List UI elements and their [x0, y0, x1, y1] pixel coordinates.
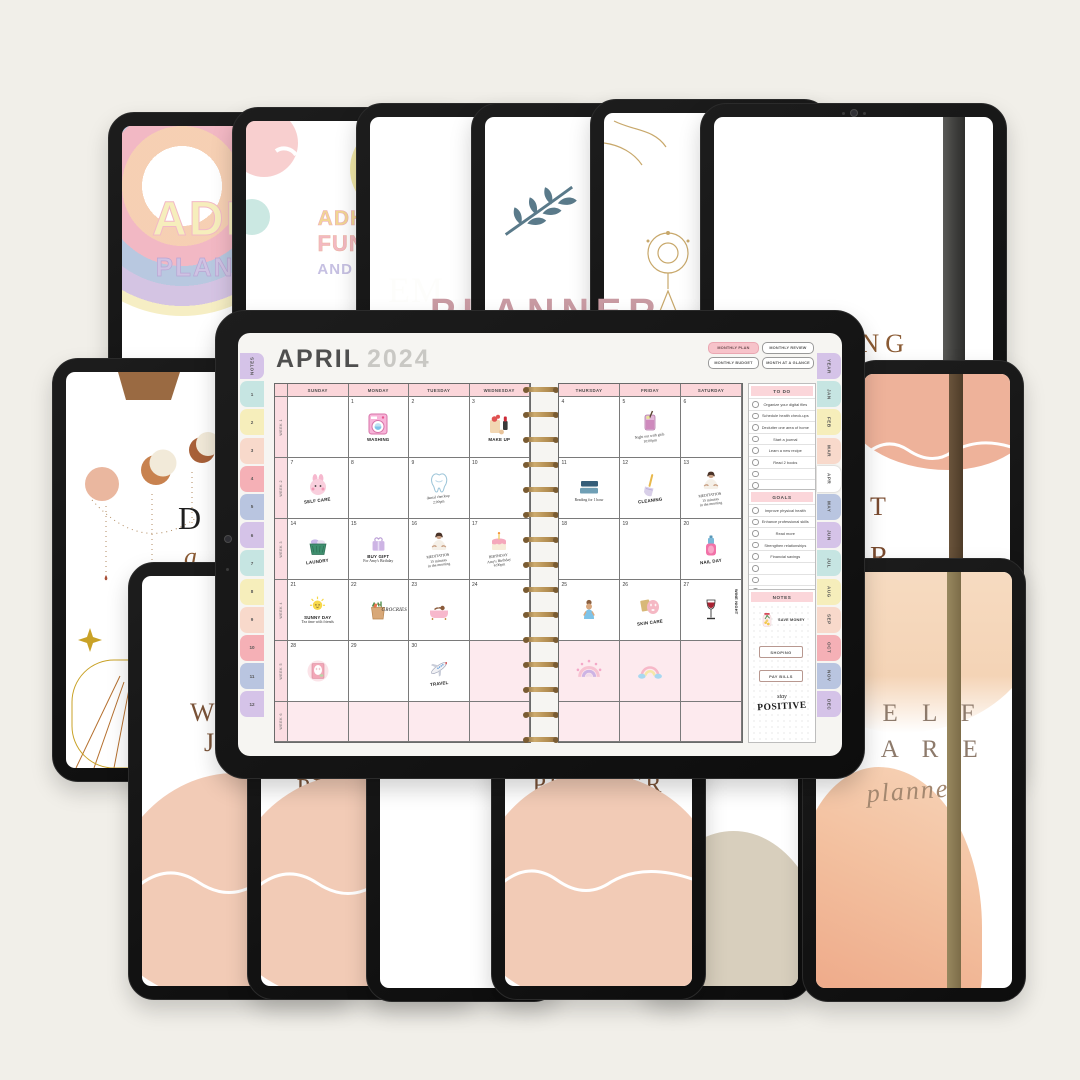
coil-ring-icon: [525, 387, 557, 392]
day-cell-empty[interactable]: [470, 702, 531, 742]
event-label: SELF CARE: [304, 496, 331, 504]
day-cell-empty[interactable]: [620, 702, 681, 742]
day-cell-23[interactable]: 23: [409, 580, 470, 641]
tab-feb[interactable]: FEB: [817, 409, 841, 435]
week-label-2: WEEK 2: [275, 458, 288, 519]
camera-dots-icon: [842, 109, 866, 117]
tab-3[interactable]: 3: [240, 438, 264, 464]
meditation-sticker: [427, 530, 451, 554]
day-cell-28[interactable]: 28: [288, 641, 349, 702]
day-cell-9[interactable]: 9dental checkup2:00pm: [409, 458, 470, 519]
checkbox-circle-icon[interactable]: [752, 413, 759, 420]
event-note: Night out with girls10:00pm: [635, 432, 666, 445]
event-label: GROCRIES: [382, 608, 407, 613]
checklist-item-empty[interactable]: [749, 562, 815, 574]
event-label: NAIL DAY: [700, 557, 722, 565]
day-cell-13[interactable]: 13MEDITATION15 minutesin the morning: [681, 458, 742, 519]
checklist-label: Read more: [759, 531, 812, 536]
day-cell-29[interactable]: 29: [349, 641, 410, 702]
calendar-right-page: THURSDAYFRIDAYSATURDAY45Night out with g…: [558, 383, 743, 743]
week-label-6: WEEK 6: [275, 702, 288, 742]
cover-letter-fragment: J: [204, 728, 214, 758]
cover-letter-fragment: T: [870, 492, 886, 522]
day-cell-18[interactable]: 18: [559, 519, 620, 580]
tab-may[interactable]: MAY: [817, 494, 841, 520]
tab-12[interactable]: 12: [240, 691, 264, 717]
day-cell-empty[interactable]: [349, 702, 410, 742]
checkbox-circle-icon[interactable]: [752, 530, 759, 537]
view-button-monthly-budget[interactable]: MONTHLY BUDGET: [708, 357, 759, 369]
coil-ring-icon: [525, 537, 557, 542]
tab-1[interactable]: 1: [240, 381, 264, 407]
panel-title: NOTES: [751, 592, 813, 602]
tab-jan[interactable]: JAN: [817, 381, 841, 407]
tab-apr[interactable]: APR: [817, 466, 841, 492]
day-number: 4: [562, 399, 565, 405]
rainbow-hearts-sticker: [575, 657, 603, 685]
day-cell-27[interactable]: 27WINE NIGHT: [681, 580, 742, 641]
cake-sticker: [487, 530, 511, 554]
tab-10[interactable]: 10: [240, 635, 264, 661]
camera-icon: [224, 535, 232, 543]
tab-sep[interactable]: SEP: [817, 607, 841, 633]
day-cell-empty[interactable]: [409, 702, 470, 742]
checklist-item[interactable]: Read 2 books: [749, 456, 815, 468]
tablet-monthly-planner-main: APRIL2024 MONTHLY PLANMONTHLY REVIEWMONT…: [215, 310, 865, 779]
left-tab-column: NOTES123456789101112: [240, 353, 264, 717]
day-number: 15: [351, 521, 357, 527]
checklist-item[interactable]: Start a journal: [749, 433, 815, 445]
day-header-saturday: SATURDAY: [681, 384, 742, 397]
event-label: WASHING: [367, 437, 389, 442]
checklist-item[interactable]: Schedule health check-ups: [749, 410, 815, 422]
elastic-strap: [947, 572, 961, 988]
makeup-sticker: [487, 412, 511, 436]
day-cell-2[interactable]: 2: [409, 397, 470, 458]
day-number: 3: [472, 399, 475, 405]
script-stay: stay: [749, 694, 815, 700]
tab-jul[interactable]: JUL: [817, 550, 841, 576]
event-note: MEDITATION15 minutesin the morning: [426, 553, 451, 570]
tab-year[interactable]: YEAR: [817, 353, 841, 379]
year-title: 2024: [367, 345, 431, 373]
ribbon-shopping[interactable]: SHOPING: [759, 646, 803, 658]
day-number: 30: [412, 643, 418, 649]
day-number: 1: [351, 399, 354, 405]
day-cell-empty[interactable]: [681, 702, 742, 742]
white-wave-line-icon: [505, 862, 692, 932]
goals-panel: GOALSImprove physical healthEnhance prof…: [748, 489, 816, 598]
day-cell-1[interactable]: 1WASHING: [349, 397, 410, 458]
view-button-monthly-review[interactable]: MONTHLY REVIEW: [762, 342, 814, 354]
face-mask-sticker: [306, 659, 330, 683]
day-header-thursday: THURSDAY: [559, 384, 620, 397]
day-number: 21: [291, 582, 297, 588]
day-cell-6[interactable]: 6: [681, 397, 742, 458]
event-note: Reading for 1 hour: [575, 498, 604, 503]
checkbox-circle-icon[interactable]: [752, 507, 759, 514]
day-number: 24: [472, 582, 478, 588]
day-cell-3[interactable]: 3MAKE UP: [470, 397, 531, 458]
planner-app-screen: APRIL2024 MONTHLY PLANMONTHLY REVIEWMONT…: [238, 333, 842, 756]
week-label-1: WEEK 1: [275, 397, 288, 458]
day-cell-22[interactable]: 22GROCRIES: [349, 580, 410, 641]
day-header-wednesday: WEDNESDAY: [470, 384, 531, 397]
bunny-sticker: [306, 473, 330, 497]
day-number: 25: [562, 582, 568, 588]
event-note: Tea time with friends: [302, 620, 334, 625]
tab-9[interactable]: 9: [240, 607, 264, 633]
month-title: APRIL: [276, 345, 361, 373]
books-sticker: [577, 474, 601, 498]
day-number: 2: [412, 399, 415, 405]
day-cell-25[interactable]: 25: [559, 580, 620, 641]
week-label-5: WEEK 5: [275, 641, 288, 702]
event-label: LAUNDRY: [306, 557, 329, 565]
broom-sticker: [638, 473, 662, 497]
washing-machine-sticker: [366, 412, 390, 436]
savings-jar-sticker: [759, 612, 775, 628]
day-cell-24[interactable]: 24: [470, 580, 531, 641]
day-cell-empty[interactable]: [559, 702, 620, 742]
day-number: 12: [623, 460, 629, 466]
coil-ring-icon: [525, 662, 557, 667]
checklist-label: Financial savings: [759, 554, 812, 559]
planner-mockup-scene: ADHD PLANNER ADHD FUNC AND CO EM: [0, 0, 1080, 1080]
day-cell-15[interactable]: 15BUY GIFTFor Amy's Birthday: [349, 519, 410, 580]
day-number: 11: [562, 460, 567, 466]
day-cell-empty[interactable]: [288, 702, 349, 742]
day-cell-12[interactable]: 12CLEANING: [620, 458, 681, 519]
day-number: 14: [291, 521, 297, 527]
tab-7[interactable]: 7: [240, 550, 264, 576]
day-cell-empty[interactable]: [470, 641, 531, 702]
day-cell-26[interactable]: 26SKIN CARE: [620, 580, 681, 641]
checklist-item[interactable]: Financial savings: [749, 550, 815, 562]
tab-mar[interactable]: MAR: [817, 438, 841, 464]
day-number: 10: [472, 460, 478, 466]
rainbow-clouds-sticker: [636, 657, 664, 685]
day-number: 7: [291, 460, 294, 466]
event-label: CLEANING: [638, 496, 663, 504]
day-cell-empty[interactable]: [620, 641, 681, 702]
view-buttons: MONTHLY PLANMONTHLY REVIEWMONTHLY BUDGET…: [708, 342, 814, 369]
event-note: For Amy's Birthday: [363, 559, 393, 564]
coil-ring-icon: [525, 712, 557, 717]
tab-dec[interactable]: DEC: [817, 691, 841, 717]
day-number: 26: [623, 582, 629, 588]
header-corner: [275, 384, 288, 397]
checkbox-circle-icon[interactable]: [752, 577, 759, 584]
checkbox-circle-icon[interactable]: [752, 459, 759, 466]
cocktail-sticker: [638, 410, 662, 434]
tab-4[interactable]: 4: [240, 466, 264, 492]
checkbox-circle-icon[interactable]: [752, 436, 759, 443]
day-number: 19: [623, 521, 629, 527]
checkbox-circle-icon[interactable]: [752, 553, 759, 560]
camera-dot-icon: [226, 568, 229, 571]
day-header-friday: FRIDAY: [620, 384, 681, 397]
coil-ring-icon: [525, 737, 557, 742]
checklist-label: Improve physical health: [759, 508, 812, 513]
tab-notes[interactable]: NOTES: [240, 353, 264, 379]
spiral-binding: [525, 387, 557, 756]
day-header-tuesday: TUESDAY: [409, 384, 470, 397]
page-title: APRIL2024: [276, 345, 431, 374]
gift-sticker: [369, 534, 388, 553]
checklist-label: Learn a new recipe: [759, 448, 812, 453]
day-number: 20: [684, 521, 690, 527]
todo-panel: TO DOOrganize your digital filesSchedule…: [748, 383, 816, 492]
partially-hidden-cover-title: PLANNER: [430, 293, 704, 311]
coil-ring-icon: [525, 437, 557, 442]
checklist-label: Organize your digital files: [759, 402, 812, 407]
sticker-label: SAVE MONEY: [778, 618, 805, 622]
tab-8[interactable]: 8: [240, 579, 264, 605]
view-button-monthly-plan[interactable]: MONTHLY PLAN: [708, 342, 759, 354]
panel-title: GOALS: [751, 492, 813, 502]
checklist-label: Strengthen relationships: [759, 543, 812, 548]
day-cell-empty[interactable]: [559, 641, 620, 702]
event-label: TRAVEL: [429, 680, 448, 687]
day-number: 28: [291, 643, 297, 649]
airplane-sticker: [427, 656, 451, 680]
day-cell-19[interactable]: 19: [620, 519, 681, 580]
day-number: 18: [562, 521, 568, 527]
event-note: dental checkup2:00pm: [427, 494, 451, 506]
event-label: SKIN CARE: [637, 618, 663, 626]
cover-letter-fragment: D: [178, 500, 201, 537]
coil-ring-icon: [525, 612, 557, 617]
day-cell-empty[interactable]: [288, 397, 349, 458]
checklist-item[interactable]: Enhance professional skills: [749, 516, 815, 528]
day-cell-7[interactable]: 7SELF CARE: [288, 458, 349, 519]
checklist-item[interactable]: Read more: [749, 527, 815, 539]
leaf-sprig-icon: [492, 160, 583, 258]
tab-2[interactable]: 2: [240, 409, 264, 435]
tooth-sticker: [427, 471, 451, 495]
skincare-sticker: [638, 595, 662, 619]
checklist-item[interactable]: Declutter one area of home: [749, 421, 815, 433]
checkbox-circle-icon[interactable]: [752, 424, 759, 431]
checklist-item[interactable]: Strengthen relationships: [749, 539, 815, 551]
day-cell-8[interactable]: 8: [349, 458, 410, 519]
laundry-basket-sticker: [306, 534, 330, 558]
checkbox-circle-icon[interactable]: [752, 542, 759, 549]
day-cell-21[interactable]: 21SUNNY DAYTea time with friends: [288, 580, 349, 641]
checklist-item[interactable]: Learn a new recipe: [749, 444, 815, 456]
checklist-label: Enhance professional skills: [759, 519, 812, 524]
day-number: 13: [684, 460, 690, 466]
wine-sticker: [699, 598, 723, 622]
event-label: WINE NIGHT: [734, 589, 739, 614]
week-label-4: WEEK 4: [275, 580, 288, 641]
right-tab-column: YEARJANFEBMARAPRMAYJUNJULAUGSEPOCTNOVDEC: [817, 353, 841, 717]
day-cell-11[interactable]: 11Reading for 1 hour: [559, 458, 620, 519]
day-cell-10[interactable]: 10: [470, 458, 531, 519]
checklist-label: Read 2 books: [759, 460, 812, 465]
day-number: 9: [412, 460, 415, 466]
checkbox-circle-icon[interactable]: [752, 447, 759, 454]
checkbox-circle-icon[interactable]: [752, 482, 759, 489]
day-number: 8: [351, 460, 354, 466]
notes-panel: NOTESSAVE MONEYSHOPINGPAY BILLSstayPOSIT…: [748, 589, 816, 743]
event-note: MEDITATION15 minutesin the morning: [699, 492, 724, 509]
day-number: 22: [351, 582, 357, 588]
day-number: 17: [472, 521, 478, 527]
coil-ring-icon: [525, 462, 557, 467]
day-number: 5: [623, 399, 626, 405]
tab-oct[interactable]: OCT: [817, 635, 841, 661]
ribbon-pay-bills[interactable]: PAY BILLS: [759, 670, 803, 682]
day-cell-4[interactable]: 4: [559, 397, 620, 458]
view-button-month-at-a-glance[interactable]: MONTH AT A GLANCE: [762, 357, 814, 369]
day-cell-14[interactable]: 14LAUNDRY: [288, 519, 349, 580]
checklist-label: Schedule health check-ups: [759, 413, 812, 418]
tab-6[interactable]: 6: [240, 522, 264, 548]
cover-letter-fragment: W: [190, 698, 215, 728]
white-wave-line-icon: [864, 426, 1010, 486]
event-label: MAKE UP: [488, 437, 510, 442]
day-cell-17[interactable]: 17BIRTHDAYAmy's Birthday6:00pm: [470, 519, 531, 580]
sun-sticker: [308, 595, 327, 614]
coil-ring-icon: [525, 512, 557, 517]
checkbox-circle-icon[interactable]: [752, 519, 759, 526]
day-number: 16: [412, 521, 418, 527]
checklist-label: Start a journal: [759, 437, 812, 442]
checklist-item-empty[interactable]: [749, 574, 815, 586]
coil-ring-icon: [525, 687, 557, 692]
event-note: BIRTHDAYAmy's Birthday6:00pm: [486, 552, 512, 569]
checklist-item[interactable]: Improve physical health: [749, 504, 815, 516]
day-cell-empty[interactable]: [681, 641, 742, 702]
checkbox-circle-icon[interactable]: [752, 565, 759, 572]
day-cell-30[interactable]: 30TRAVEL: [409, 641, 470, 702]
day-number: 6: [684, 399, 687, 405]
panel-title: TO DO: [751, 386, 813, 396]
bathtub-sticker: [427, 598, 451, 622]
tab-nov[interactable]: NOV: [817, 663, 841, 689]
day-number: 29: [351, 643, 357, 649]
checkbox-circle-icon[interactable]: [752, 471, 759, 478]
coil-ring-icon: [525, 587, 557, 592]
day-header-sunday: SUNDAY: [288, 384, 349, 397]
nail-polish-sticker: [699, 534, 723, 558]
calendar-left-page: SUNDAYMONDAYTUESDAYWEDNESDAYWEEK 11WASHI…: [274, 383, 531, 743]
coil-ring-icon: [525, 562, 557, 567]
tab-5[interactable]: 5: [240, 494, 264, 520]
day-cell-20[interactable]: 20NAIL DAY: [681, 519, 742, 580]
tab-jun[interactable]: JUN: [817, 522, 841, 548]
meditation-sticker: [699, 469, 723, 493]
woman-sticker: [577, 598, 601, 622]
tab-11[interactable]: 11: [240, 663, 264, 689]
moon-glow-icon: [746, 161, 886, 301]
week-label-3: WEEK 3: [275, 519, 288, 580]
day-cell-16[interactable]: 16MEDITATION15 minutesin the morning: [409, 519, 470, 580]
day-header-monday: MONDAY: [349, 384, 410, 397]
day-cell-5[interactable]: 5Night out with girls10:00pm: [620, 397, 681, 458]
day-number: 27: [684, 582, 690, 588]
checkbox-circle-icon[interactable]: [752, 401, 759, 408]
coil-ring-icon: [525, 637, 557, 642]
tab-aug[interactable]: AUG: [817, 579, 841, 605]
checklist-item[interactable]: Organize your digital files: [749, 398, 815, 410]
day-number: 23: [412, 582, 418, 588]
checklist-label: Declutter one area of home: [759, 425, 812, 430]
checklist-item-empty[interactable]: [749, 468, 815, 480]
coil-ring-icon: [525, 412, 557, 417]
coil-ring-icon: [525, 487, 557, 492]
